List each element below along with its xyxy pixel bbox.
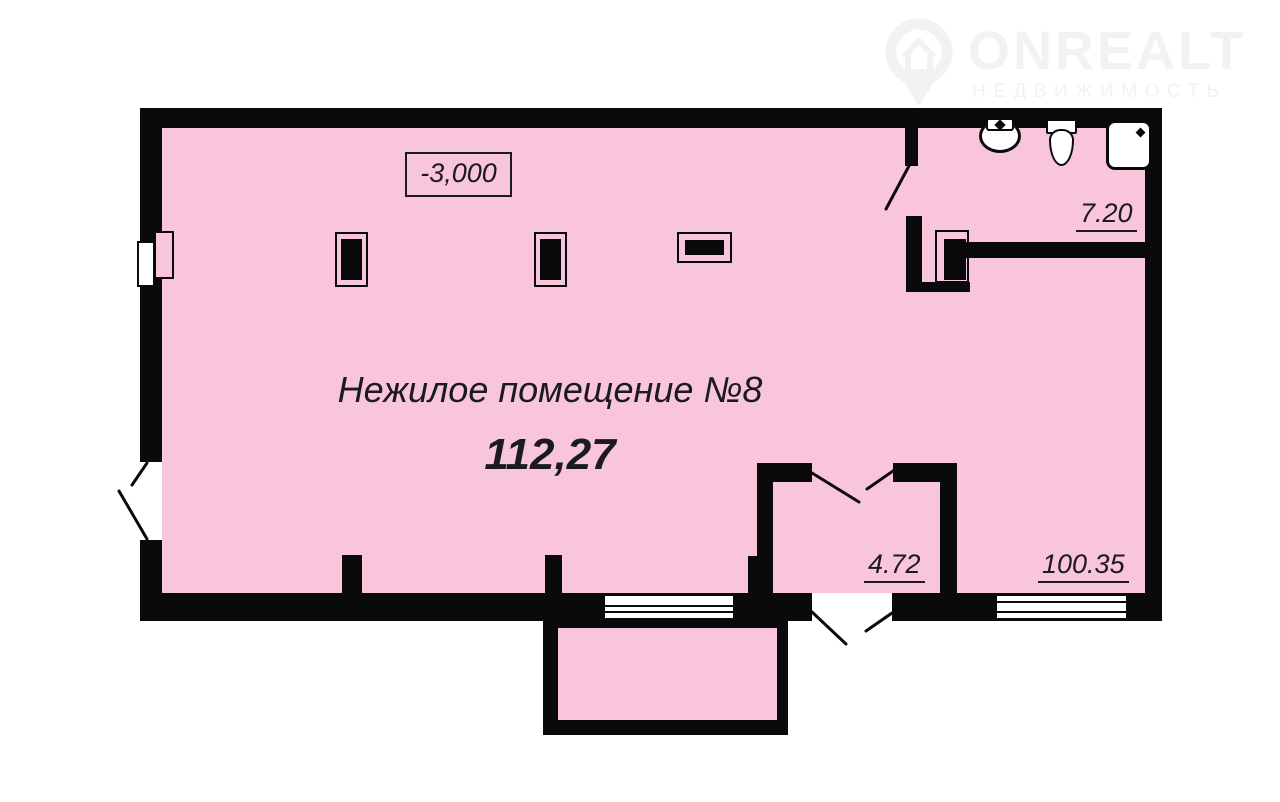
left-door-swing-lower xyxy=(119,491,147,539)
door-swing-lines xyxy=(0,0,1280,802)
floor-plan-page: ONREALT НЕДВИЖИМОСТЬ xyxy=(0,0,1280,802)
hall-door-swing-right xyxy=(867,471,893,489)
entrance-door-swing-left xyxy=(812,612,846,644)
hall-door-swing-left xyxy=(812,473,859,502)
entrance-door-swing-right xyxy=(866,613,892,631)
sanitary-door-swing xyxy=(886,164,910,209)
left-door-swing-upper xyxy=(132,463,147,485)
